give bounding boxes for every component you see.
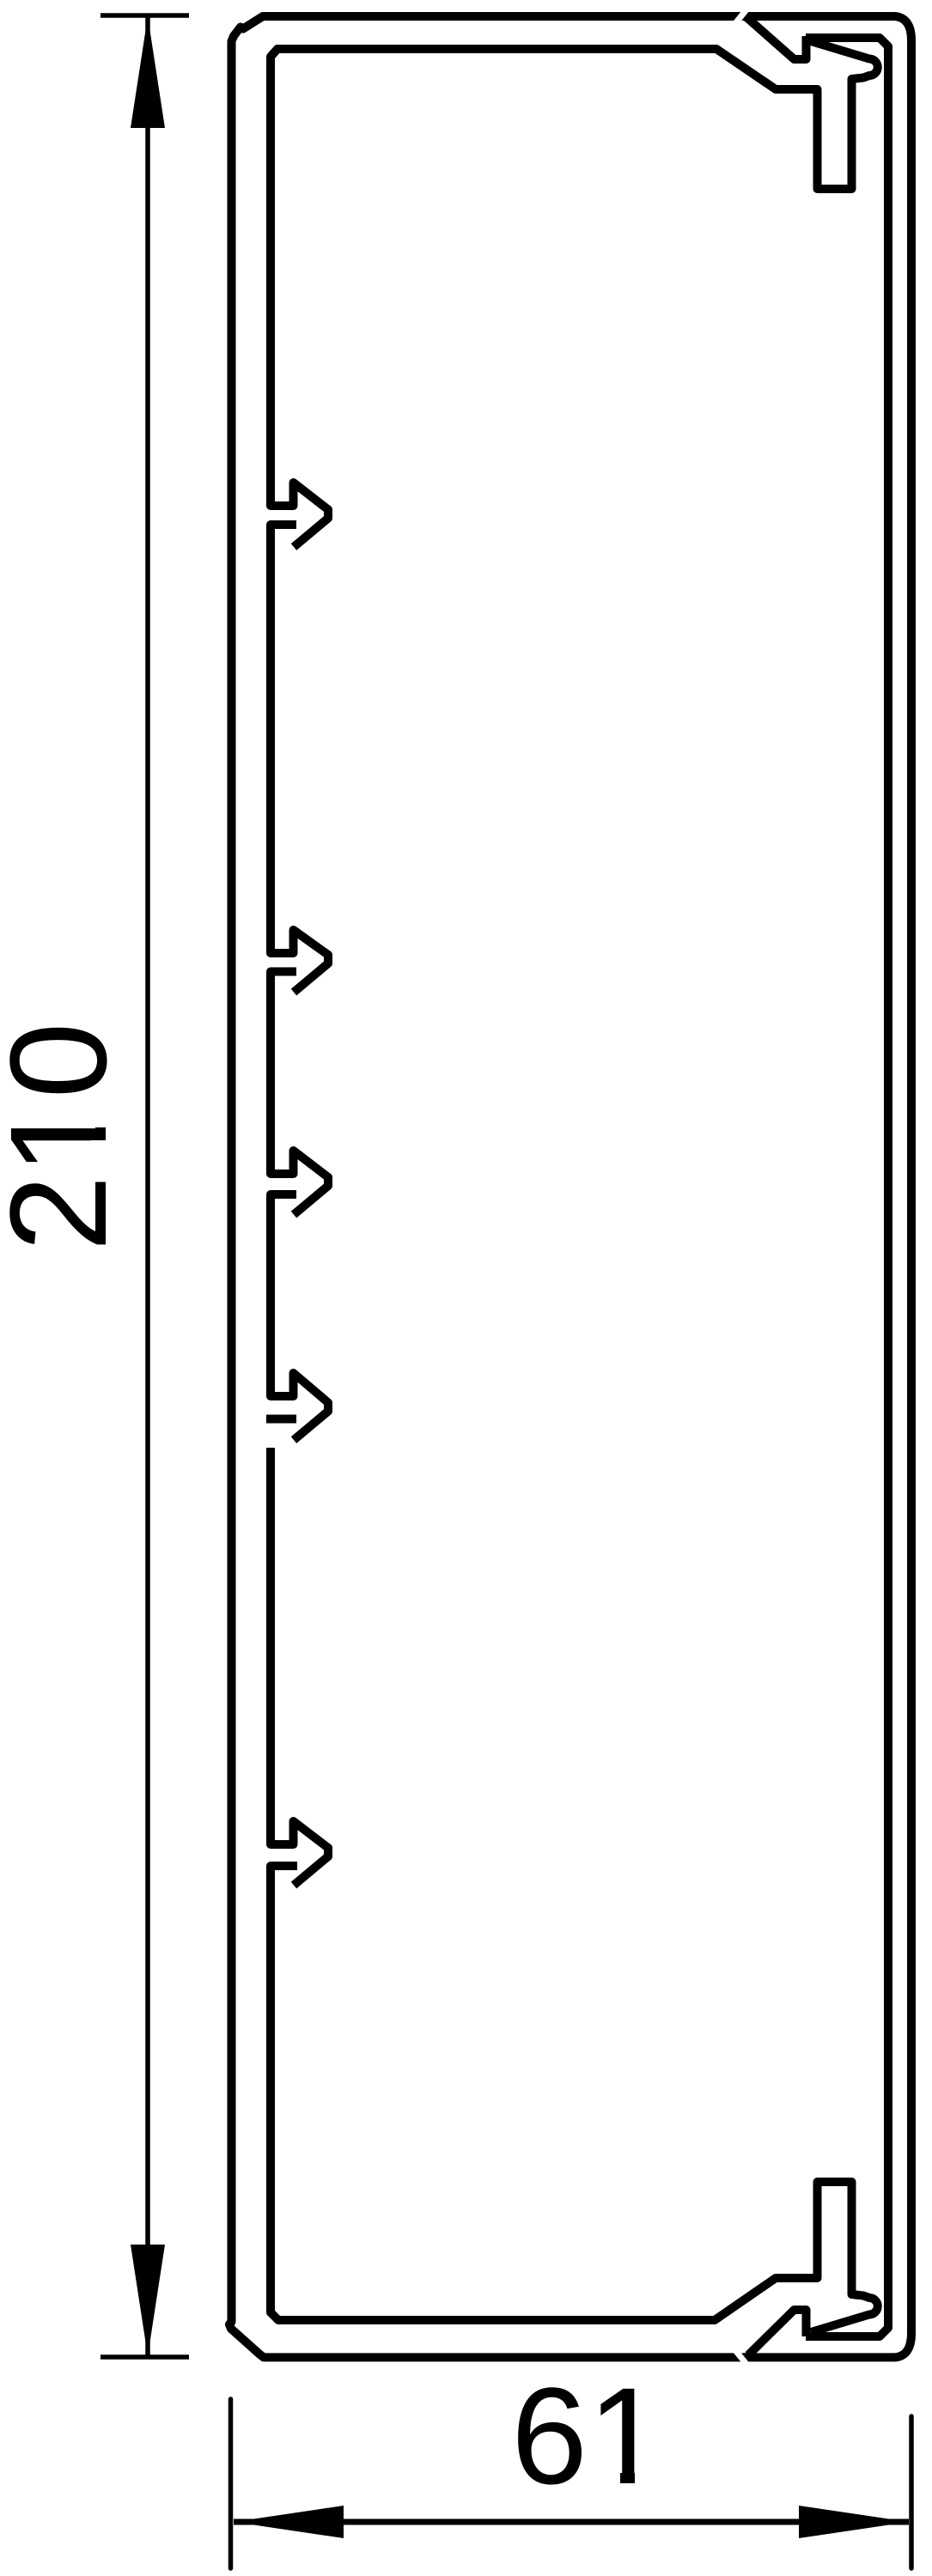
svg-text:61: 61	[511, 2359, 664, 2512]
svg-text:210: 210	[0, 1023, 135, 1252]
